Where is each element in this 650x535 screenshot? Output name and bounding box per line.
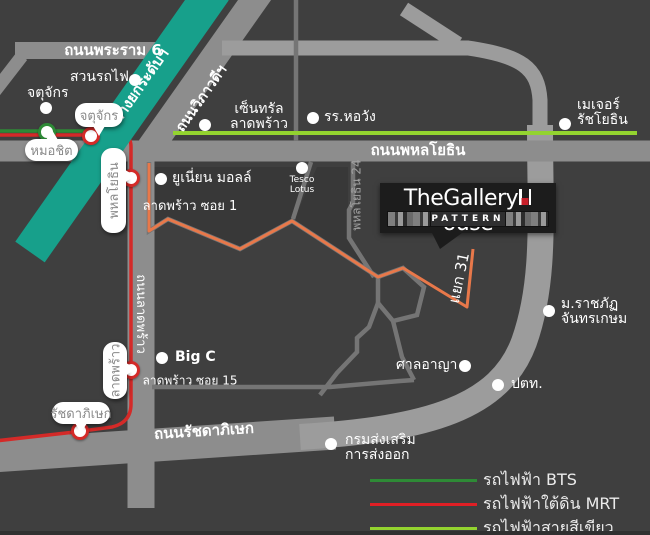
rajabhat-chandrakasem-label: ม.ราชภัฏจันทรเกษม xyxy=(561,297,633,328)
big-c-dot xyxy=(156,352,168,364)
station-chatuchak-bubble: จตุจักร xyxy=(75,103,123,127)
logo-letter-h xyxy=(519,189,531,205)
station-phahonyothin-bubble: พหลโยธิน xyxy=(101,148,126,233)
label-phahonyothin-24: พหลโยธิน 24 xyxy=(351,159,364,230)
legend-line-mrt xyxy=(370,503,477,506)
station-ratchadaphisek-bubble: รัชดาภิเษก xyxy=(52,402,110,424)
project-logo-subtitle: PATTERN xyxy=(431,211,504,227)
ptt-label: ปตท. xyxy=(511,377,551,392)
central-ladprao-label: เซ็นทรัลลาดพร้าว xyxy=(228,102,290,133)
criminal-court-dot xyxy=(459,360,471,372)
project-logo-callout: TheGalleryouse PATTERN xyxy=(380,183,556,233)
legend-item-bts: รถไฟฟ้า BTS xyxy=(370,468,577,493)
tesco-lotus-dot xyxy=(296,162,308,174)
pattern-stripes-right xyxy=(505,211,549,227)
bubble-tail xyxy=(125,170,136,182)
export-promotion-dept-dot xyxy=(325,438,337,450)
suan-rot-fai-dot xyxy=(129,74,141,86)
bubble-tail xyxy=(75,423,87,433)
station-ladprao-bubble: ลาดพร้าว xyxy=(103,342,127,399)
project-logo-title: TheGalleryouse xyxy=(380,186,556,212)
legend-item-mrt: รถไฟฟ้าใต้ดิน MRT xyxy=(370,492,619,517)
ptt-dot xyxy=(492,379,504,391)
pattern-stripes-left xyxy=(387,211,431,227)
rajabhat-chandrakasem-dot xyxy=(543,305,555,317)
major-ratchayothin-dot xyxy=(559,118,571,130)
label-road-ladprao: ถนนลาดพร้าว xyxy=(133,274,147,354)
horwang-school-dot xyxy=(307,112,319,124)
label-ladprao-soi-1: ลาดพร้าว ซอย 1 xyxy=(143,200,238,214)
project-logo-pointer xyxy=(432,233,462,249)
bubble-tail xyxy=(126,363,137,375)
horwang-school-label: รร.หอวัง xyxy=(324,110,384,125)
road-rama6-stub xyxy=(0,56,22,100)
label-road-rama6: ถนนพระราม 6 xyxy=(64,42,162,58)
bottom-edge-bar xyxy=(0,531,650,535)
legend-label-bts: รถไฟฟ้า BTS xyxy=(483,468,577,493)
map-canvas: ถนนพระราม 6ทางยกระดับฯถนนวิภาวดีฯถนนพหลโ… xyxy=(0,0,650,535)
bubble-tail xyxy=(46,130,58,140)
criminal-court-label: ศาลอาญา xyxy=(396,358,456,373)
legend-label-mrt: รถไฟฟ้าใต้ดิน MRT xyxy=(483,492,619,517)
bubble-tail xyxy=(93,126,105,136)
export-promotion-dept-label: กรมส่งเสริมการส่งออก xyxy=(345,433,429,464)
road-upper-prong xyxy=(404,9,458,44)
station-mochit-bubble: หมอชิต xyxy=(25,139,78,161)
logo-text-pre: TheGallery xyxy=(404,186,518,211)
union-mall-dot xyxy=(155,173,167,185)
central-ladprao-dot xyxy=(199,119,211,131)
label-ladprao-soi-15: ลาดพร้าว ซอย 15 xyxy=(143,375,238,388)
union-mall-label: ยูเนี่ยน มอลล์ xyxy=(172,171,248,186)
logo-red-square xyxy=(522,198,529,205)
major-ratchayothin-label: เมเจอร์รัชโยธิน xyxy=(577,98,637,129)
chatuchak-park-dot xyxy=(40,102,52,114)
chatuchak-park-label: จตุจักร xyxy=(27,86,73,101)
label-road-phahonyothin: ถนนพหลโยธิน xyxy=(371,142,466,158)
legend-line-green-line xyxy=(370,527,477,530)
suan-rot-fai-label: สวนรถไฟ xyxy=(70,70,128,85)
project-logo-pattern-strip: PATTERN xyxy=(387,211,549,227)
big-c-label: Big C xyxy=(175,350,217,365)
tesco-lotus-label: TescoLotus xyxy=(284,176,320,196)
legend-line-bts xyxy=(370,479,477,482)
